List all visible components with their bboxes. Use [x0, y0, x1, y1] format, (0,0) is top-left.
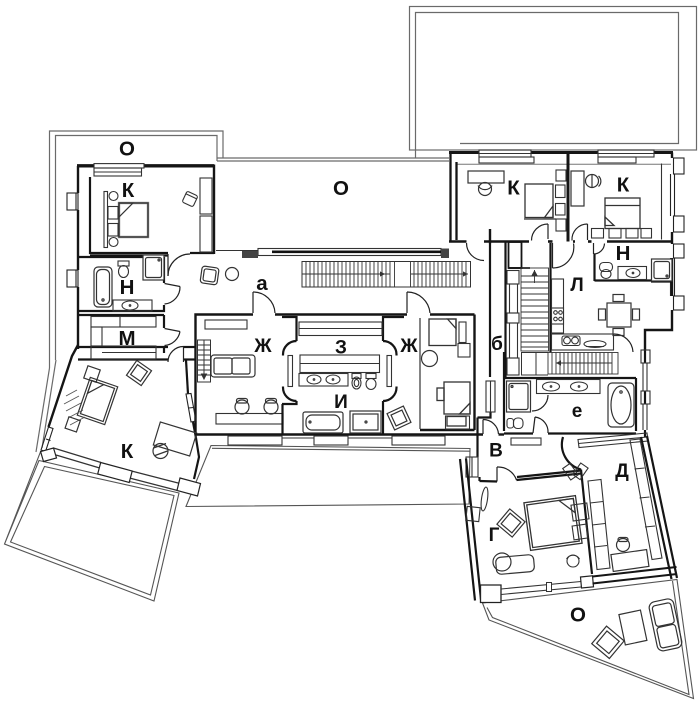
- svg-text:Ж: Ж: [253, 336, 272, 357]
- svg-text:К: К: [617, 174, 630, 197]
- svg-text:К: К: [507, 177, 520, 200]
- svg-text:Ж: Ж: [399, 336, 418, 357]
- svg-text:О: О: [570, 604, 586, 627]
- svg-text:Г: Г: [489, 525, 500, 546]
- svg-text:О: О: [119, 138, 135, 161]
- svg-text:Н: Н: [120, 276, 135, 299]
- svg-text:О: О: [333, 177, 349, 200]
- svg-text:З: З: [335, 338, 347, 359]
- svg-text:Л: Л: [570, 275, 583, 296]
- svg-text:б: б: [491, 334, 503, 355]
- svg-text:В: В: [489, 441, 503, 462]
- svg-text:Н: Н: [616, 242, 631, 265]
- svg-text:И: И: [334, 392, 348, 413]
- svg-text:М: М: [118, 327, 135, 350]
- svg-text:е: е: [572, 401, 583, 422]
- svg-text:К: К: [121, 440, 134, 463]
- svg-text:К: К: [122, 179, 135, 202]
- svg-text:Д: Д: [615, 461, 629, 482]
- svg-text:а: а: [256, 272, 268, 295]
